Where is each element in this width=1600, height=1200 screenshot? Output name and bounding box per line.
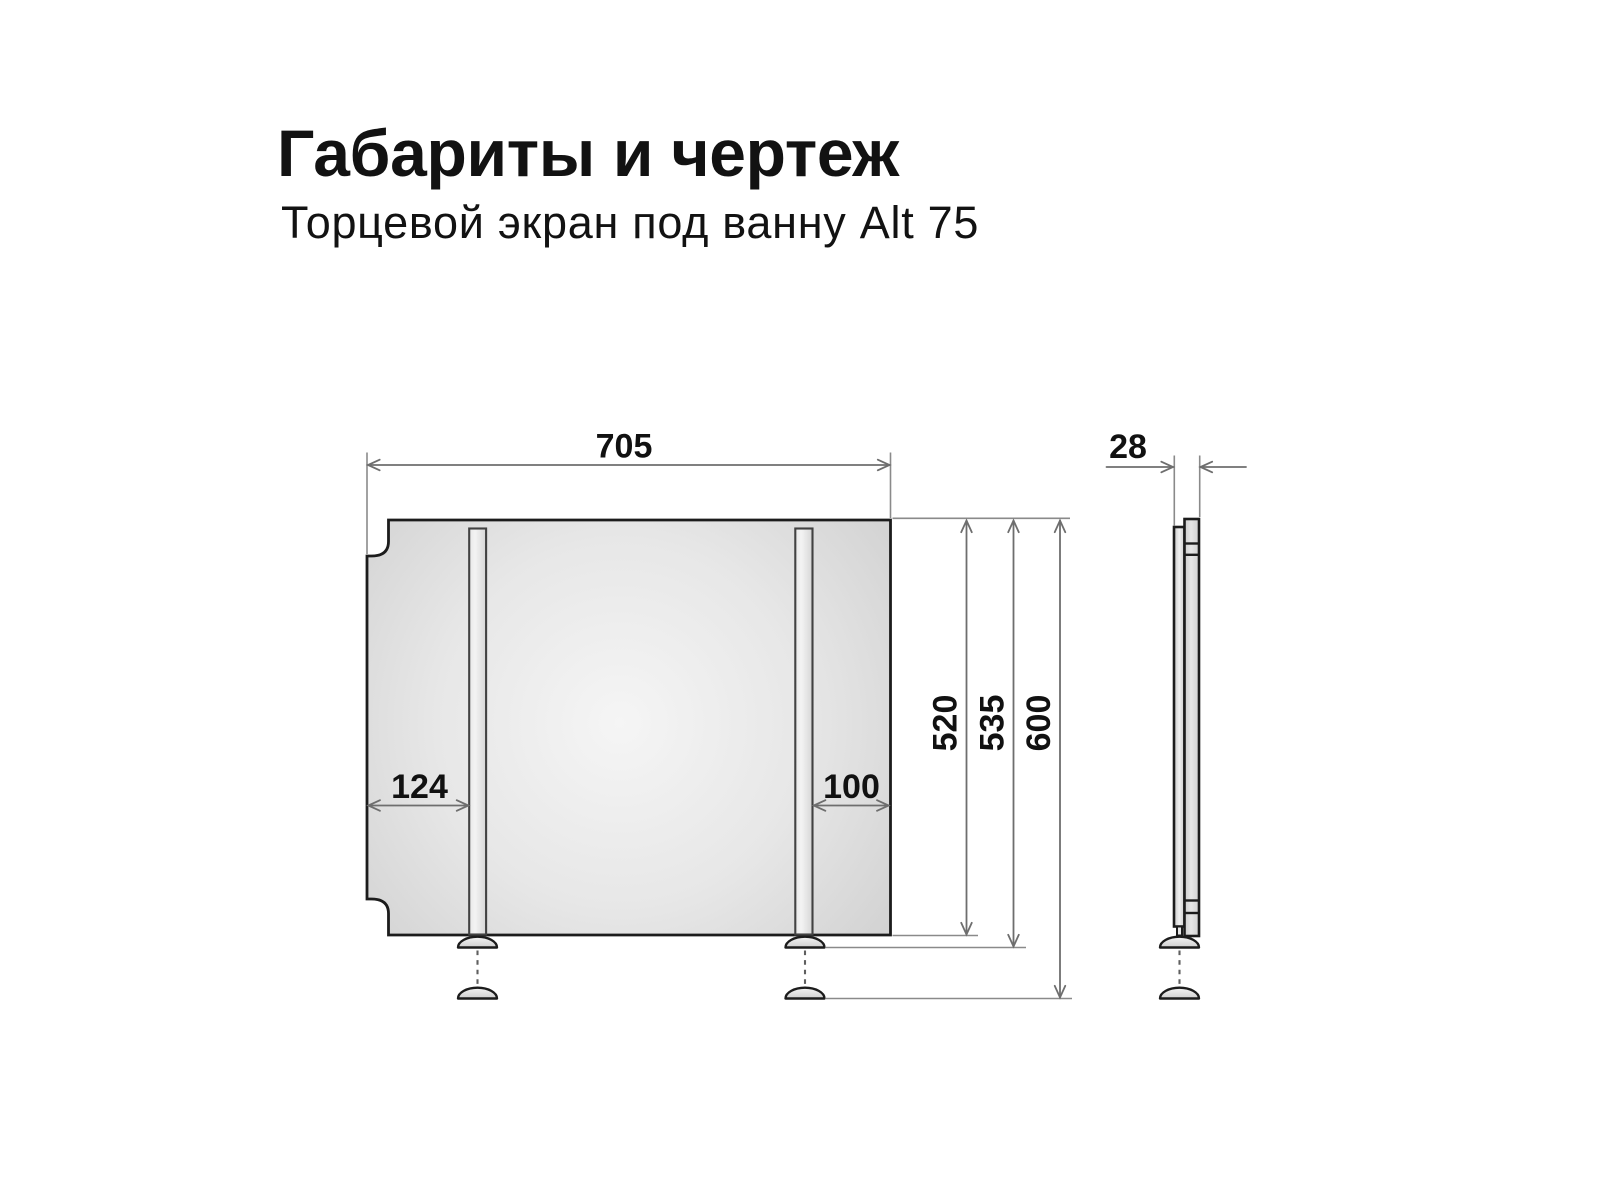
svg-text:705: 705	[596, 428, 653, 466]
svg-text:520: 520	[927, 695, 965, 752]
svg-text:28: 28	[1109, 428, 1147, 466]
svg-text:124: 124	[391, 768, 448, 806]
svg-text:600: 600	[1020, 695, 1058, 752]
svg-text:Торцевой экран под ванну Alt 7: Торцевой экран под ванну Alt 75	[281, 197, 979, 248]
svg-text:100: 100	[823, 768, 880, 806]
svg-text:Габариты и чертеж: Габариты и чертеж	[277, 116, 900, 190]
svg-text:535: 535	[974, 695, 1012, 752]
